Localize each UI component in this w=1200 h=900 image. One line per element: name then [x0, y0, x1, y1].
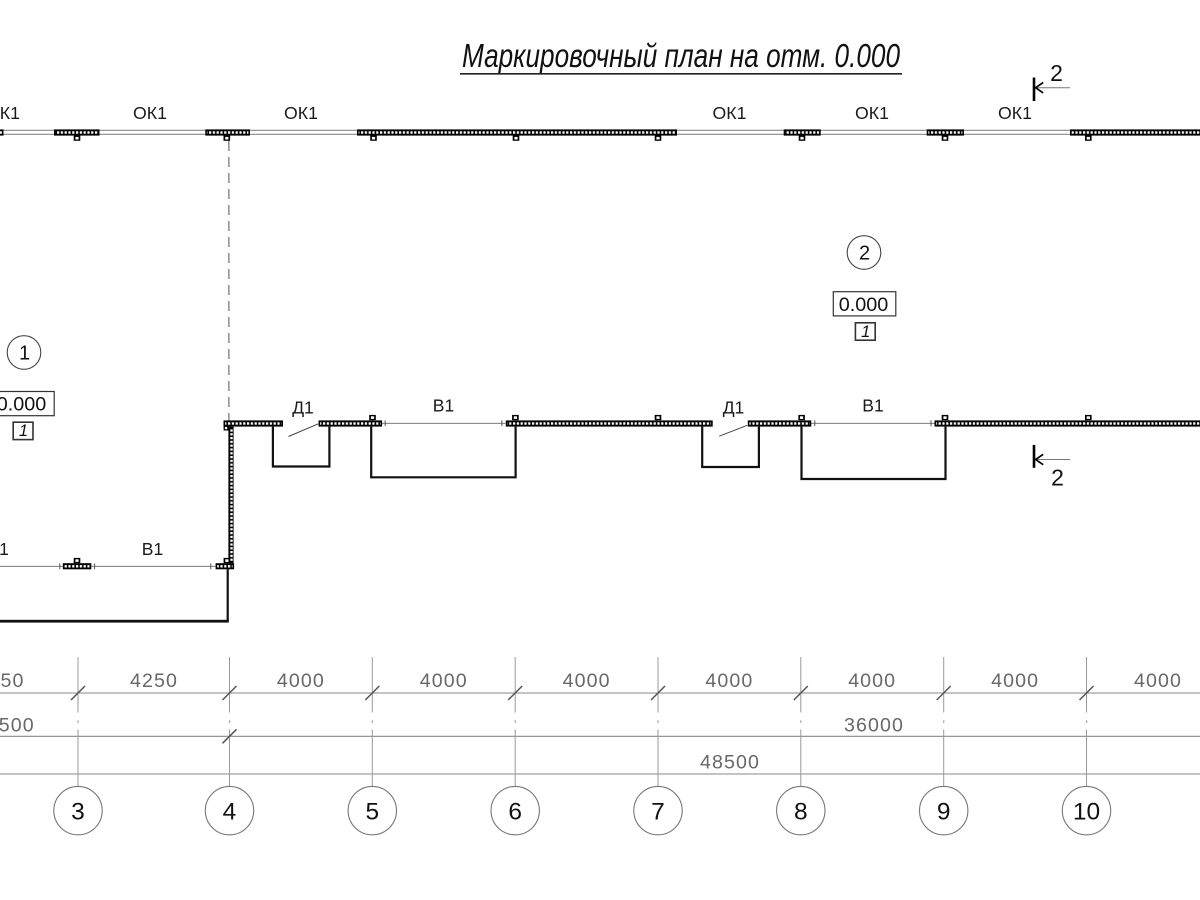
- svg-text:Маркировочный план на отм. 0.0: Маркировочный план на отм. 0.000: [462, 38, 900, 75]
- svg-text:7: 7: [651, 798, 665, 825]
- svg-text:1: 1: [19, 422, 28, 440]
- svg-text:4: 4: [223, 798, 237, 825]
- svg-text:36000: 36000: [844, 715, 904, 737]
- svg-text:4000: 4000: [420, 670, 468, 692]
- svg-text:ОК1: ОК1: [998, 103, 1032, 123]
- svg-text:В1: В1: [862, 396, 883, 416]
- svg-text:1: 1: [861, 323, 870, 341]
- svg-text:4250: 4250: [0, 670, 25, 692]
- svg-text:4000: 4000: [991, 670, 1039, 692]
- svg-text:2: 2: [1051, 465, 1064, 491]
- svg-text:ОК1: ОК1: [855, 103, 889, 123]
- svg-text:4000: 4000: [705, 670, 753, 692]
- svg-text:6: 6: [508, 798, 522, 825]
- svg-text:ОК1: ОК1: [284, 103, 318, 123]
- svg-text:4000: 4000: [563, 670, 611, 692]
- svg-text:2: 2: [1050, 60, 1063, 86]
- svg-text:Д1: Д1: [723, 398, 745, 418]
- svg-text:8500: 8500: [0, 715, 35, 737]
- svg-text:0.000: 0.000: [839, 294, 889, 316]
- svg-text:ОК1: ОК1: [133, 103, 167, 123]
- svg-text:В1: В1: [0, 539, 9, 559]
- svg-text:48500: 48500: [700, 752, 760, 774]
- svg-text:4000: 4000: [848, 670, 896, 692]
- svg-text:В1: В1: [433, 396, 454, 416]
- svg-text:В1: В1: [142, 539, 163, 559]
- svg-text:1: 1: [19, 343, 30, 365]
- svg-text:3: 3: [71, 798, 85, 825]
- svg-text:4250: 4250: [130, 670, 178, 692]
- svg-text:2: 2: [859, 243, 870, 265]
- svg-text:5: 5: [365, 798, 379, 825]
- svg-text:9: 9: [937, 798, 951, 825]
- svg-text:4000: 4000: [277, 670, 325, 692]
- svg-text:ОК1: ОК1: [713, 103, 747, 123]
- svg-text:10: 10: [1073, 798, 1100, 825]
- svg-text:4000: 4000: [1134, 670, 1182, 692]
- svg-text:Д1: Д1: [292, 398, 314, 418]
- svg-text:ОК1: ОК1: [0, 103, 20, 123]
- svg-text:0.000: 0.000: [0, 394, 46, 416]
- svg-text:8: 8: [794, 798, 808, 825]
